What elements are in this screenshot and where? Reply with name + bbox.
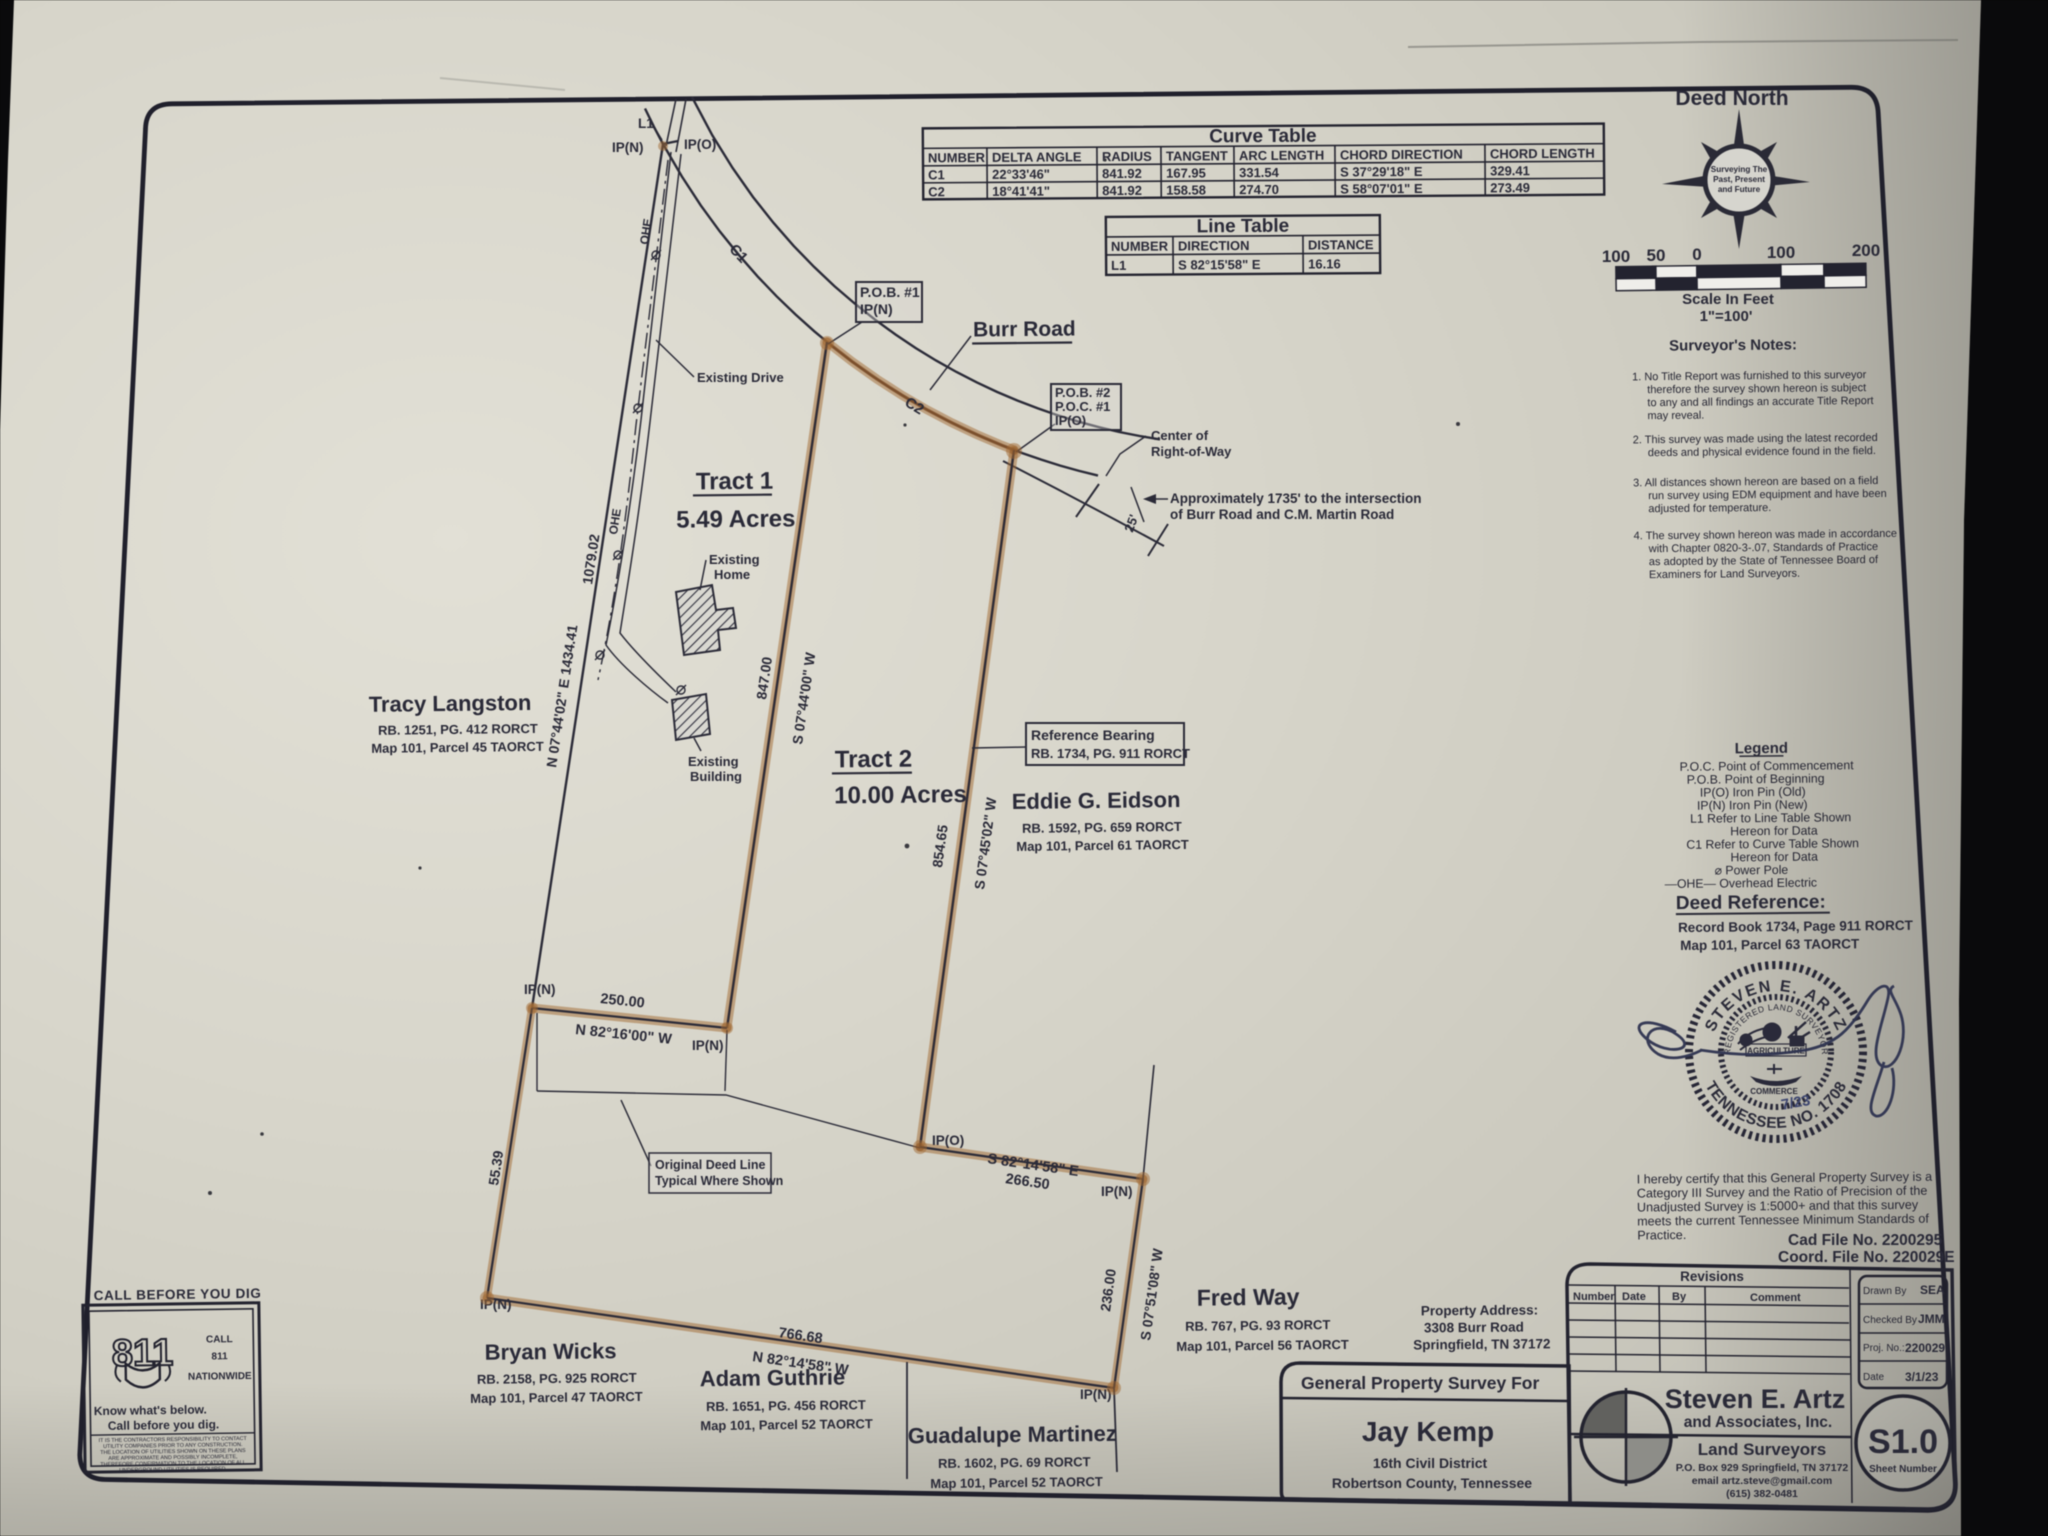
svg-text:TANGENT: TANGENT [1166,148,1228,163]
svg-text:meets the current Tennessee Mi: meets the current Tennessee Minimum Stan… [1637,1212,1929,1229]
svg-text:50: 50 [1647,246,1666,265]
svg-text:Approximately 1735' to the int: Approximately 1735' to the intersection [1170,491,1422,506]
svg-text:SEA: SEA [1920,1283,1945,1297]
svg-text:CHORD LENGTH: CHORD LENGTH [1490,146,1595,162]
svg-text:Original Deed Line: Original Deed Line [655,1158,765,1172]
svg-text:Sheet Number: Sheet Number [1869,1464,1937,1475]
svg-text:Center of: Center of [1151,428,1209,443]
svg-text:IP(O): IP(O) [1055,413,1086,428]
svg-text:P.O.C. #1: P.O.C. #1 [1055,399,1110,414]
svg-text:ARC LENGTH: ARC LENGTH [1239,148,1324,164]
svg-text:run survey using EDM equipment: run survey using EDM equipment and have … [1648,488,1887,502]
svg-text:L1: L1 [638,116,654,131]
svg-text:Deed North: Deed North [1675,87,1788,110]
svg-text:IP(N): IP(N) [524,982,556,997]
svg-text:Map 101, Parcel 45 TAORCT: Map 101, Parcel 45 TAORCT [371,739,544,756]
svg-text:—OHE— Overhead Electric: —OHE— Overhead Electric [1665,876,1818,891]
svg-text:811: 811 [211,1351,228,1362]
svg-text:JMM: JMM [1918,1312,1945,1326]
svg-text:Proj. No.:: Proj. No.: [1863,1343,1905,1354]
svg-text:IP(N): IP(N) [1080,1387,1112,1402]
svg-text:100: 100 [1767,243,1795,262]
svg-text:Checked By: Checked By [1863,1315,1917,1326]
svg-text:Home: Home [714,567,750,582]
svg-text:0: 0 [1692,245,1701,264]
svg-text:RB. 1592, PG. 659 RORCT: RB. 1592, PG. 659 RORCT [1022,819,1182,836]
svg-text:RB. 1251, PG. 412 RORCT: RB. 1251, PG. 412 RORCT [378,721,538,738]
svg-text:Existing: Existing [709,552,760,567]
svg-text:Number: Number [1573,1291,1615,1303]
svg-text:Map 101, Parcel 56 TAORCT: Map 101, Parcel 56 TAORCT [1176,1337,1349,1354]
svg-text:Past, Present: Past, Present [1713,175,1765,184]
svg-text:Right-of-Way: Right-of-Way [1151,444,1232,459]
svg-text:3/1/23: 3/1/23 [1905,1370,1939,1384]
svg-text:Examiners for Land Surveyors.: Examiners for Land Surveyors. [1649,568,1800,581]
svg-text:Land Surveyors: Land Surveyors [1698,1440,1827,1459]
svg-text:Date: Date [1863,1372,1885,1383]
svg-text:Guadalupe Martinez: Guadalupe Martinez [908,1421,1117,1449]
svg-text:Adam Guthrie: Adam Guthrie [700,1364,846,1391]
svg-text:Surveyor's Notes:: Surveyor's Notes: [1669,336,1797,354]
svg-text:Record Book 1734, Page 911 ROR: Record Book 1734, Page 911 RORCT [1678,918,1914,935]
svg-text:RB. 767, PG. 93 RORCT: RB. 767, PG. 93 RORCT [1185,1317,1330,1334]
svg-text:may reveal.: may reveal. [1647,410,1704,423]
svg-text:Coord. File No. 220029E: Coord. File No. 220029E [1778,1249,1955,1266]
svg-text:IP(N): IP(N) [692,1038,724,1053]
svg-text:220029: 220029 [1905,1341,1945,1355]
svg-text:and Future: and Future [1718,185,1761,194]
svg-text:as adopted by the State of Ten: as adopted by the State of Tennessee Boa… [1649,554,1879,568]
svg-text:3308 Burr Road: 3308 Burr Road [1424,1320,1524,1336]
svg-text:Revisions: Revisions [1680,1269,1744,1284]
svg-text:Legend: Legend [1735,740,1789,758]
svg-text:IP(N): IP(N) [612,140,644,155]
svg-text:Date: Date [1622,1291,1646,1303]
svg-text:S1.0: S1.0 [1868,1423,1938,1461]
svg-text:RB. 1602, PG. 69 RORCT: RB. 1602, PG. 69 RORCT [938,1454,1091,1471]
svg-text:Map 101, Parcel 52 TAORCT: Map 101, Parcel 52 TAORCT [930,1474,1103,1491]
svg-text:C1: C1 [928,167,945,182]
svg-text:Tract 2: Tract 2 [835,746,913,774]
svg-text:By: By [1672,1291,1687,1303]
svg-text:NATIONWIDE: NATIONWIDE [188,1371,252,1383]
svg-text:4. The survey shown hereon was: 4. The survey shown hereon was made in a… [1634,528,1897,543]
svg-text:Springfield, TN 37172: Springfield, TN 37172 [1413,1336,1550,1352]
svg-text:1. No Title Report was furnish: 1. No Title Report was furnished to this… [1632,369,1867,383]
svg-text:200: 200 [1852,241,1880,260]
svg-text:Deed Reference:: Deed Reference: [1676,892,1826,914]
svg-text:Property Address:: Property Address: [1421,1302,1538,1318]
svg-text:CALL: CALL [206,1334,233,1345]
svg-text:DISTANCE: DISTANCE [1308,237,1374,252]
svg-text:16.16: 16.16 [1308,256,1341,271]
svg-text:16th Civil District: 16th Civil District [1373,1455,1488,1471]
svg-text:Existing: Existing [688,754,739,769]
svg-text:Burr Road: Burr Road [973,317,1076,341]
svg-text:18°41'41": 18°41'41" [992,183,1050,198]
svg-text:Fred Way: Fred Way [1197,1283,1300,1310]
svg-text:email artz.steve@gmail.com: email artz.steve@gmail.com [1692,1475,1832,1487]
svg-text:NUMBER: NUMBER [1111,239,1169,254]
svg-text:S 37°29'18" E: S 37°29'18" E [1340,164,1423,180]
svg-text:Map 101, Parcel 61 TAORCT: Map 101, Parcel 61 TAORCT [1016,837,1189,854]
svg-text:with Chapter 0820-3-.07, Stand: with Chapter 0820-3-.07, Standards of Pr… [1648,541,1878,555]
svg-text:RB. 1651, PG. 456 RORCT: RB. 1651, PG. 456 RORCT [706,1397,866,1414]
svg-text:RB. 1734, PG. 911 RORCT: RB. 1734, PG. 911 RORCT [1031,746,1190,761]
svg-text:Map 101, Parcel 47 TAORCT: Map 101, Parcel 47 TAORCT [470,1389,643,1406]
svg-text:273.49: 273.49 [1490,180,1530,195]
svg-text:22°33'46": 22°33'46" [992,166,1050,181]
svg-text:to any and all findings an acc: to any and all findings an accurate Titl… [1647,395,1873,409]
svg-text:Scale In Feet: Scale In Feet [1682,291,1774,308]
svg-text:10.00 Acres: 10.00 Acres [834,781,967,809]
svg-text:C2: C2 [928,184,945,199]
svg-text:deeds and physical evidence fo: deeds and physical evidence found in the… [1648,445,1876,459]
svg-text:167.95: 167.95 [1166,165,1206,180]
svg-text:Map 101, Parcel 63 TAORCT: Map 101, Parcel 63 TAORCT [1680,936,1860,953]
svg-text:Reference Bearing: Reference Bearing [1031,727,1155,743]
svg-text:(615) 382-0481: (615) 382-0481 [1726,1488,1798,1500]
svg-text:Line Table: Line Table [1197,216,1290,238]
svg-text:P.O. Box 929 Springfield, TN 3: P.O. Box 929 Springfield, TN 37172 [1676,1462,1849,1474]
svg-text:CHORD DIRECTION: CHORD DIRECTION [1340,147,1463,163]
svg-text:Eddie G. Eidson: Eddie G. Eidson [1012,787,1181,814]
svg-text:DELTA ANGLE: DELTA ANGLE [992,149,1082,165]
svg-text:General Property Survey For: General Property Survey For [1301,1373,1539,1393]
svg-text:274.70: 274.70 [1239,182,1279,197]
svg-text:RADIUS: RADIUS [1102,149,1152,164]
svg-text:S 82°15'58" E: S 82°15'58" E [1178,257,1261,273]
svg-text:of Burr Road and C.M. Martin R: of Burr Road and C.M. Martin Road [1170,507,1394,522]
svg-text:Map 101, Parcel 52 TAORCT: Map 101, Parcel 52 TAORCT [700,1416,873,1433]
svg-text:Steven E. Artz: Steven E. Artz [1665,1384,1846,1414]
svg-text:IP(N): IP(N) [1101,1184,1133,1199]
svg-text:therefore the survey shown her: therefore the survey shown hereon is sub… [1647,382,1866,396]
svg-text:100: 100 [1602,247,1630,266]
svg-text:811: 811 [112,1332,174,1375]
svg-text:841.92: 841.92 [1102,183,1142,198]
svg-text:CALL BEFORE YOU DIG: CALL BEFORE YOU DIG [94,1286,262,1303]
svg-text:331.54: 331.54 [1239,165,1280,180]
svg-text:and Associates, Inc.: and Associates, Inc. [1684,1414,1832,1431]
svg-text:NUMBER: NUMBER [928,150,986,165]
svg-text:Practice.: Practice. [1637,1228,1686,1242]
svg-text:Bryan Wicks: Bryan Wicks [485,1338,617,1365]
svg-text:Curve Table: Curve Table [1209,126,1317,148]
svg-text:Tract 1: Tract 1 [696,468,774,496]
svg-text:P.O.B. #1: P.O.B. #1 [860,284,920,300]
svg-text:Tracy Langston: Tracy Langston [369,690,532,717]
svg-text:329.41: 329.41 [1490,163,1530,178]
svg-text:IP(N): IP(N) [860,301,893,317]
svg-text:Surveying The: Surveying The [1711,165,1768,174]
svg-text:Robertson County, Tennessee: Robertson County, Tennessee [1332,1475,1532,1491]
svg-text:Drawn By: Drawn By [1863,1286,1906,1297]
svg-text:5.49 Acres: 5.49 Acres [676,505,795,533]
svg-text:Typical Where Shown: Typical Where Shown [655,1174,783,1188]
svg-text:2. This survey was made using: 2. This survey was made using the latest… [1633,432,1878,446]
svg-text:1"=100': 1"=100' [1700,308,1753,325]
svg-text:Know what's below.: Know what's below. [94,1403,207,1419]
svg-text:IP(O): IP(O) [932,1133,964,1148]
svg-text:adjusted for temperature.: adjusted for temperature. [1648,502,1771,515]
svg-text:IP(O): IP(O) [684,137,716,152]
svg-text:DIRECTION: DIRECTION [1178,238,1250,253]
svg-text:Existing Drive: Existing Drive [697,370,784,385]
svg-text:P.O.B. #2: P.O.B. #2 [1055,385,1110,400]
svg-text:Jay Kemp: Jay Kemp [1362,1416,1494,1447]
svg-text:841.92: 841.92 [1102,166,1142,181]
svg-text:Cad File No. 2200295: Cad File No. 2200295 [1788,1232,1943,1249]
svg-text:Call before you dig.: Call before you dig. [108,1417,220,1433]
svg-text:Building: Building [690,769,742,784]
svg-text:158.58: 158.58 [1166,182,1206,197]
svg-text:3. All distances shown hereon: 3. All distances shown hereon are based … [1633,475,1878,489]
svg-text:L1: L1 [1111,258,1126,273]
svg-text:RB. 2158, PG. 925 RORCT: RB. 2158, PG. 925 RORCT [477,1370,637,1387]
svg-text:Comment: Comment [1750,1292,1801,1304]
svg-text:S 58°07'01" E: S 58°07'01" E [1340,181,1423,197]
